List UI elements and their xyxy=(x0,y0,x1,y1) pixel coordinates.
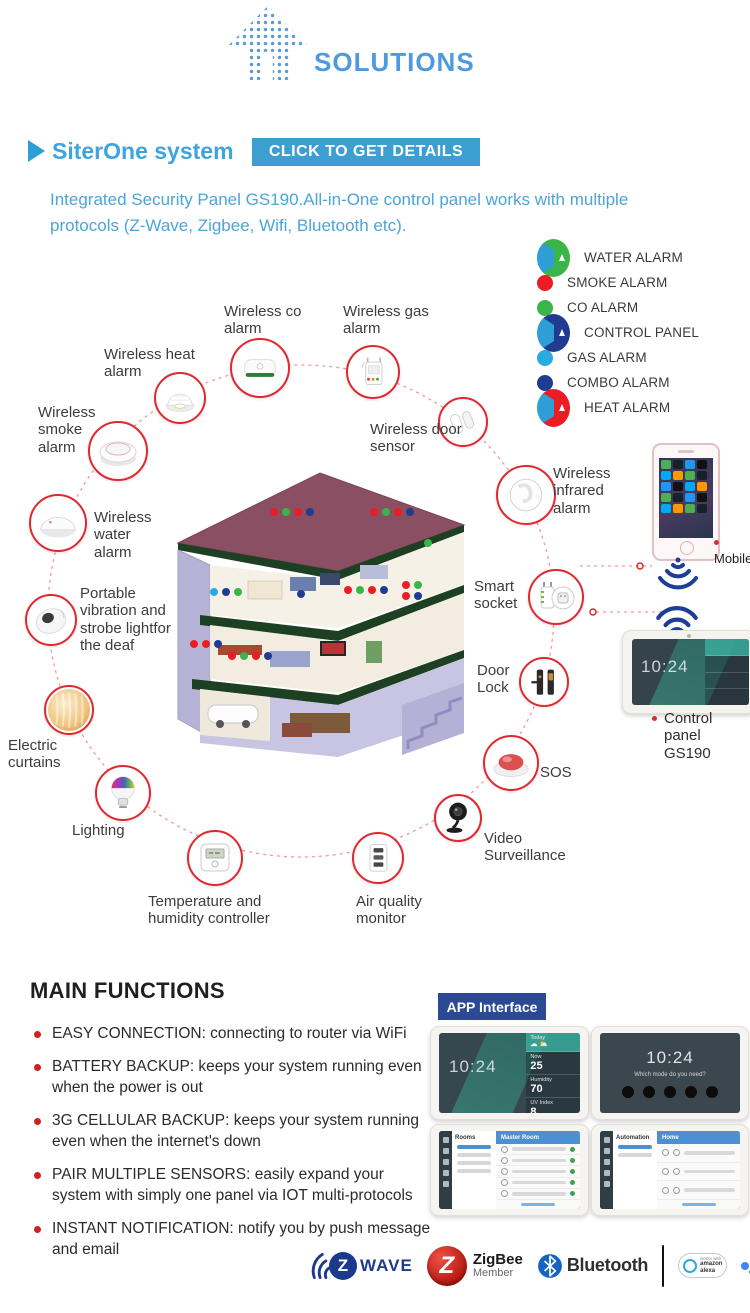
legend-label: GAS ALARM xyxy=(567,350,647,365)
intro-line-2: protocols (Z-Wave, Zigbee, Wifi, Bluetoo… xyxy=(50,213,710,239)
temperature-controller-device-icon xyxy=(195,840,235,876)
water-alarm-icon xyxy=(537,239,570,277)
device-air-quality-monitor xyxy=(352,832,404,884)
app-nav-rail xyxy=(439,1131,452,1209)
app-interface-badge: APP Interface xyxy=(438,993,546,1020)
legend-item-water-alarm: WATER ALARM xyxy=(537,245,699,270)
widget-humidity: Humidity70 xyxy=(526,1075,580,1098)
phone-screen xyxy=(659,458,713,538)
control-panel-screen: 10:24 xyxy=(632,639,749,705)
title-bullet-icon xyxy=(28,140,45,162)
rooms-header: Master Room xyxy=(496,1131,580,1144)
heat-alarm-icon xyxy=(537,389,570,427)
panel-widget-column xyxy=(705,639,749,705)
zigbee-wordmark: ZigBee xyxy=(473,1252,523,1267)
co-alarm-device-icon xyxy=(239,352,281,384)
device-label-lighting: Lighting xyxy=(72,822,152,839)
widget-now: Now25 xyxy=(526,1052,580,1075)
device-label-smart-socket: Smart socket xyxy=(474,578,526,613)
dashboard-widgets: Today☁ ⛅ Now25 Humidity70 UV Index8 xyxy=(526,1033,580,1113)
device-label-temperature: Temperature and humidity controller xyxy=(148,893,293,928)
zwave-wordmark: WAVE xyxy=(360,1256,413,1276)
function-bullet: EASY CONNECTION: connecting to router vi… xyxy=(30,1024,432,1044)
gas-alarm-icon xyxy=(537,350,553,366)
electric-curtains-device-icon xyxy=(48,689,90,731)
mobile-label: Mobile xyxy=(714,536,750,566)
device-co-alarm xyxy=(230,338,290,398)
wifi-up-icon xyxy=(654,556,702,594)
device-label-electric-curtains: Electric curtains xyxy=(8,737,72,772)
device-label-water-alarm: Wireless water alarm xyxy=(94,509,156,561)
device-vibration-strobe xyxy=(25,594,77,646)
device-label-vibration-strobe: Portable vibration and strobe lightfor t… xyxy=(80,585,174,655)
device-electric-curtains xyxy=(44,685,94,735)
google-assistant-icon xyxy=(741,1258,750,1274)
panel-clock: 10:24 xyxy=(641,657,689,677)
smoke-alarm-icon xyxy=(537,275,553,291)
automation-sidebar: Automation xyxy=(613,1131,657,1209)
bluetooth-logo: Bluetooth xyxy=(537,1253,648,1279)
house-cutaway-illustration xyxy=(170,465,472,765)
app-screen-dashboard: 10:24 Today☁ ⛅ Now25 Humidity70 UV Index… xyxy=(430,1026,589,1120)
app-screen-modes: 10:24 Which mode do you need? xyxy=(591,1026,749,1120)
legend-item-control-panel: CONTROL PANEL xyxy=(537,320,699,345)
app-screen-automation: Automation Home xyxy=(591,1124,749,1216)
legend-label: SMOKE ALARM xyxy=(567,275,667,290)
automation-screen: Automation Home xyxy=(600,1131,740,1209)
legend: WATER ALARM SMOKE ALARM CO ALARM CONTROL… xyxy=(537,245,699,420)
bluetooth-wordmark: Bluetooth xyxy=(567,1255,648,1276)
dashboard-clock: 10:24 xyxy=(449,1057,497,1077)
rooms-sidebar: Rooms xyxy=(452,1131,496,1209)
device-gas-alarm xyxy=(346,345,400,399)
infrared-alarm-device-icon xyxy=(505,474,547,516)
device-label-gas-alarm: Wireless gas alarm xyxy=(343,303,439,338)
brand-logo: SOLUTIONS xyxy=(228,6,475,80)
mobile-phone xyxy=(652,443,720,561)
zwave-logo: Z WAVE xyxy=(310,1245,413,1287)
modes-screen: 10:24 Which mode do you need? xyxy=(600,1033,740,1113)
rooms-screen: Rooms Master Room xyxy=(439,1131,580,1209)
google-assistant-badge: works with the Google Assistant xyxy=(741,1253,750,1278)
legend-label: WATER ALARM xyxy=(584,250,683,265)
mode-buttons xyxy=(621,1085,719,1099)
device-label-video-surveillance: Video Surveillance xyxy=(484,830,580,865)
red-dot-icon xyxy=(714,540,719,545)
automation-menu-title: Automation xyxy=(616,1135,654,1141)
main-functions-title: MAIN FUNCTIONS xyxy=(30,978,225,1004)
bluetooth-icon xyxy=(537,1253,563,1279)
device-label-sos: SOS xyxy=(540,764,590,781)
legend-label: HEAT ALARM xyxy=(584,400,670,415)
device-label-co-alarm: Wireless co alarm xyxy=(224,303,316,338)
heat-alarm-device-icon xyxy=(161,382,199,413)
device-door-lock xyxy=(519,657,569,707)
widget-uv-index: UV Index8 xyxy=(526,1098,580,1113)
device-label-smoke-alarm: Wireless smoke alarm xyxy=(38,404,104,456)
alexa-icon xyxy=(683,1259,697,1273)
modes-clock: 10:24 xyxy=(646,1048,694,1068)
device-water-alarm xyxy=(29,494,87,552)
app-screen-rooms: Rooms Master Room xyxy=(430,1124,589,1216)
legend-item-heat-alarm: HEAT ALARM xyxy=(537,395,699,420)
sos-button-device-icon xyxy=(490,747,532,779)
app-nav-rail xyxy=(600,1131,613,1209)
page-title: SiterOne system xyxy=(52,138,234,165)
door-lock-device-icon xyxy=(526,666,562,698)
device-label-door-sensor: Wireless door sensor xyxy=(370,421,462,456)
device-label-heat-alarm: Wireless heat alarm xyxy=(104,346,216,381)
red-dot-icon xyxy=(652,716,657,721)
device-sos-button xyxy=(483,735,539,791)
co-alarm-icon xyxy=(537,300,553,316)
modes-prompt: Which mode do you need? xyxy=(634,1072,705,1078)
function-bullet: 3G CELLULAR BACKUP: keeps your system ru… xyxy=(30,1111,432,1152)
widget-today: Today☁ ⛅ xyxy=(526,1033,580,1052)
alexa-wordmark: amazon alexa xyxy=(700,1261,722,1275)
device-infrared-alarm xyxy=(496,465,556,525)
zwave-z-icon: Z xyxy=(329,1252,357,1280)
automation-main: Home xyxy=(657,1131,740,1209)
control-panel-icon xyxy=(537,314,570,352)
brand-name: SOLUTIONS xyxy=(314,47,475,80)
legend-label: COMBO ALARM xyxy=(567,375,670,390)
amazon-alexa-badge: works with amazon alexa xyxy=(678,1253,727,1278)
control-panel-label: Control panel GS190 xyxy=(664,710,744,762)
legend-label: CONTROL PANEL xyxy=(584,325,699,340)
intro-line-1: Integrated Security Panel GS190.All-in-O… xyxy=(50,187,710,213)
phone-home-button xyxy=(680,541,694,555)
zigbee-z-icon: Z xyxy=(427,1246,467,1286)
device-label-infrared-alarm: Wireless infrared alarm xyxy=(553,465,621,517)
device-video-camera xyxy=(434,794,482,842)
main-functions-list: EASY CONNECTION: connecting to router vi… xyxy=(30,1024,432,1273)
device-label-door-lock: Door Lock xyxy=(477,662,519,697)
video-camera-device-icon xyxy=(442,800,474,836)
rooms-main: Master Room xyxy=(496,1131,580,1209)
intro-paragraph: Integrated Security Panel GS190.All-in-O… xyxy=(50,187,710,239)
gas-alarm-device-icon xyxy=(355,354,391,390)
legend-label: CO ALARM xyxy=(567,300,638,315)
cta-button[interactable]: CLICK TO GET DETAILS xyxy=(252,138,480,166)
rooms-menu-title: Rooms xyxy=(455,1135,493,1141)
dashboard-screen: 10:24 Today☁ ⛅ Now25 Humidity70 UV Index… xyxy=(439,1033,580,1113)
combo-alarm-icon xyxy=(537,375,553,391)
light-bulb-device-icon xyxy=(106,774,140,812)
smart-socket-device-icon xyxy=(536,579,576,615)
device-label-air-quality: Air quality monitor xyxy=(356,893,438,928)
function-bullet: PAIR MULTIPLE SENSORS: easily expand you… xyxy=(30,1165,432,1206)
dotted-house-logo-icon xyxy=(228,6,308,80)
zigbee-member-text: Member xyxy=(473,1267,523,1279)
device-smart-socket xyxy=(528,569,584,625)
control-panel-gs190: 10:24 xyxy=(622,630,750,714)
partner-logos: Z WAVE Z ZigBee Member Bluetooth Friends… xyxy=(310,1238,750,1293)
vibration-strobe-device-icon xyxy=(31,602,71,638)
device-temperature-controller xyxy=(187,830,243,886)
device-light-bulb xyxy=(95,765,151,821)
water-alarm-device-icon xyxy=(37,507,79,539)
friends-of-hue-logo: Friends of hue xyxy=(662,1245,664,1287)
function-bullet: BATTERY BACKUP: keeps your system runnin… xyxy=(30,1057,432,1098)
automation-header: Home xyxy=(657,1131,740,1144)
zigbee-logo: Z ZigBee Member xyxy=(427,1246,523,1286)
air-quality-device-icon xyxy=(362,841,394,875)
page: SOLUTIONS SiterOne system CLICK TO GET D… xyxy=(0,0,750,1313)
